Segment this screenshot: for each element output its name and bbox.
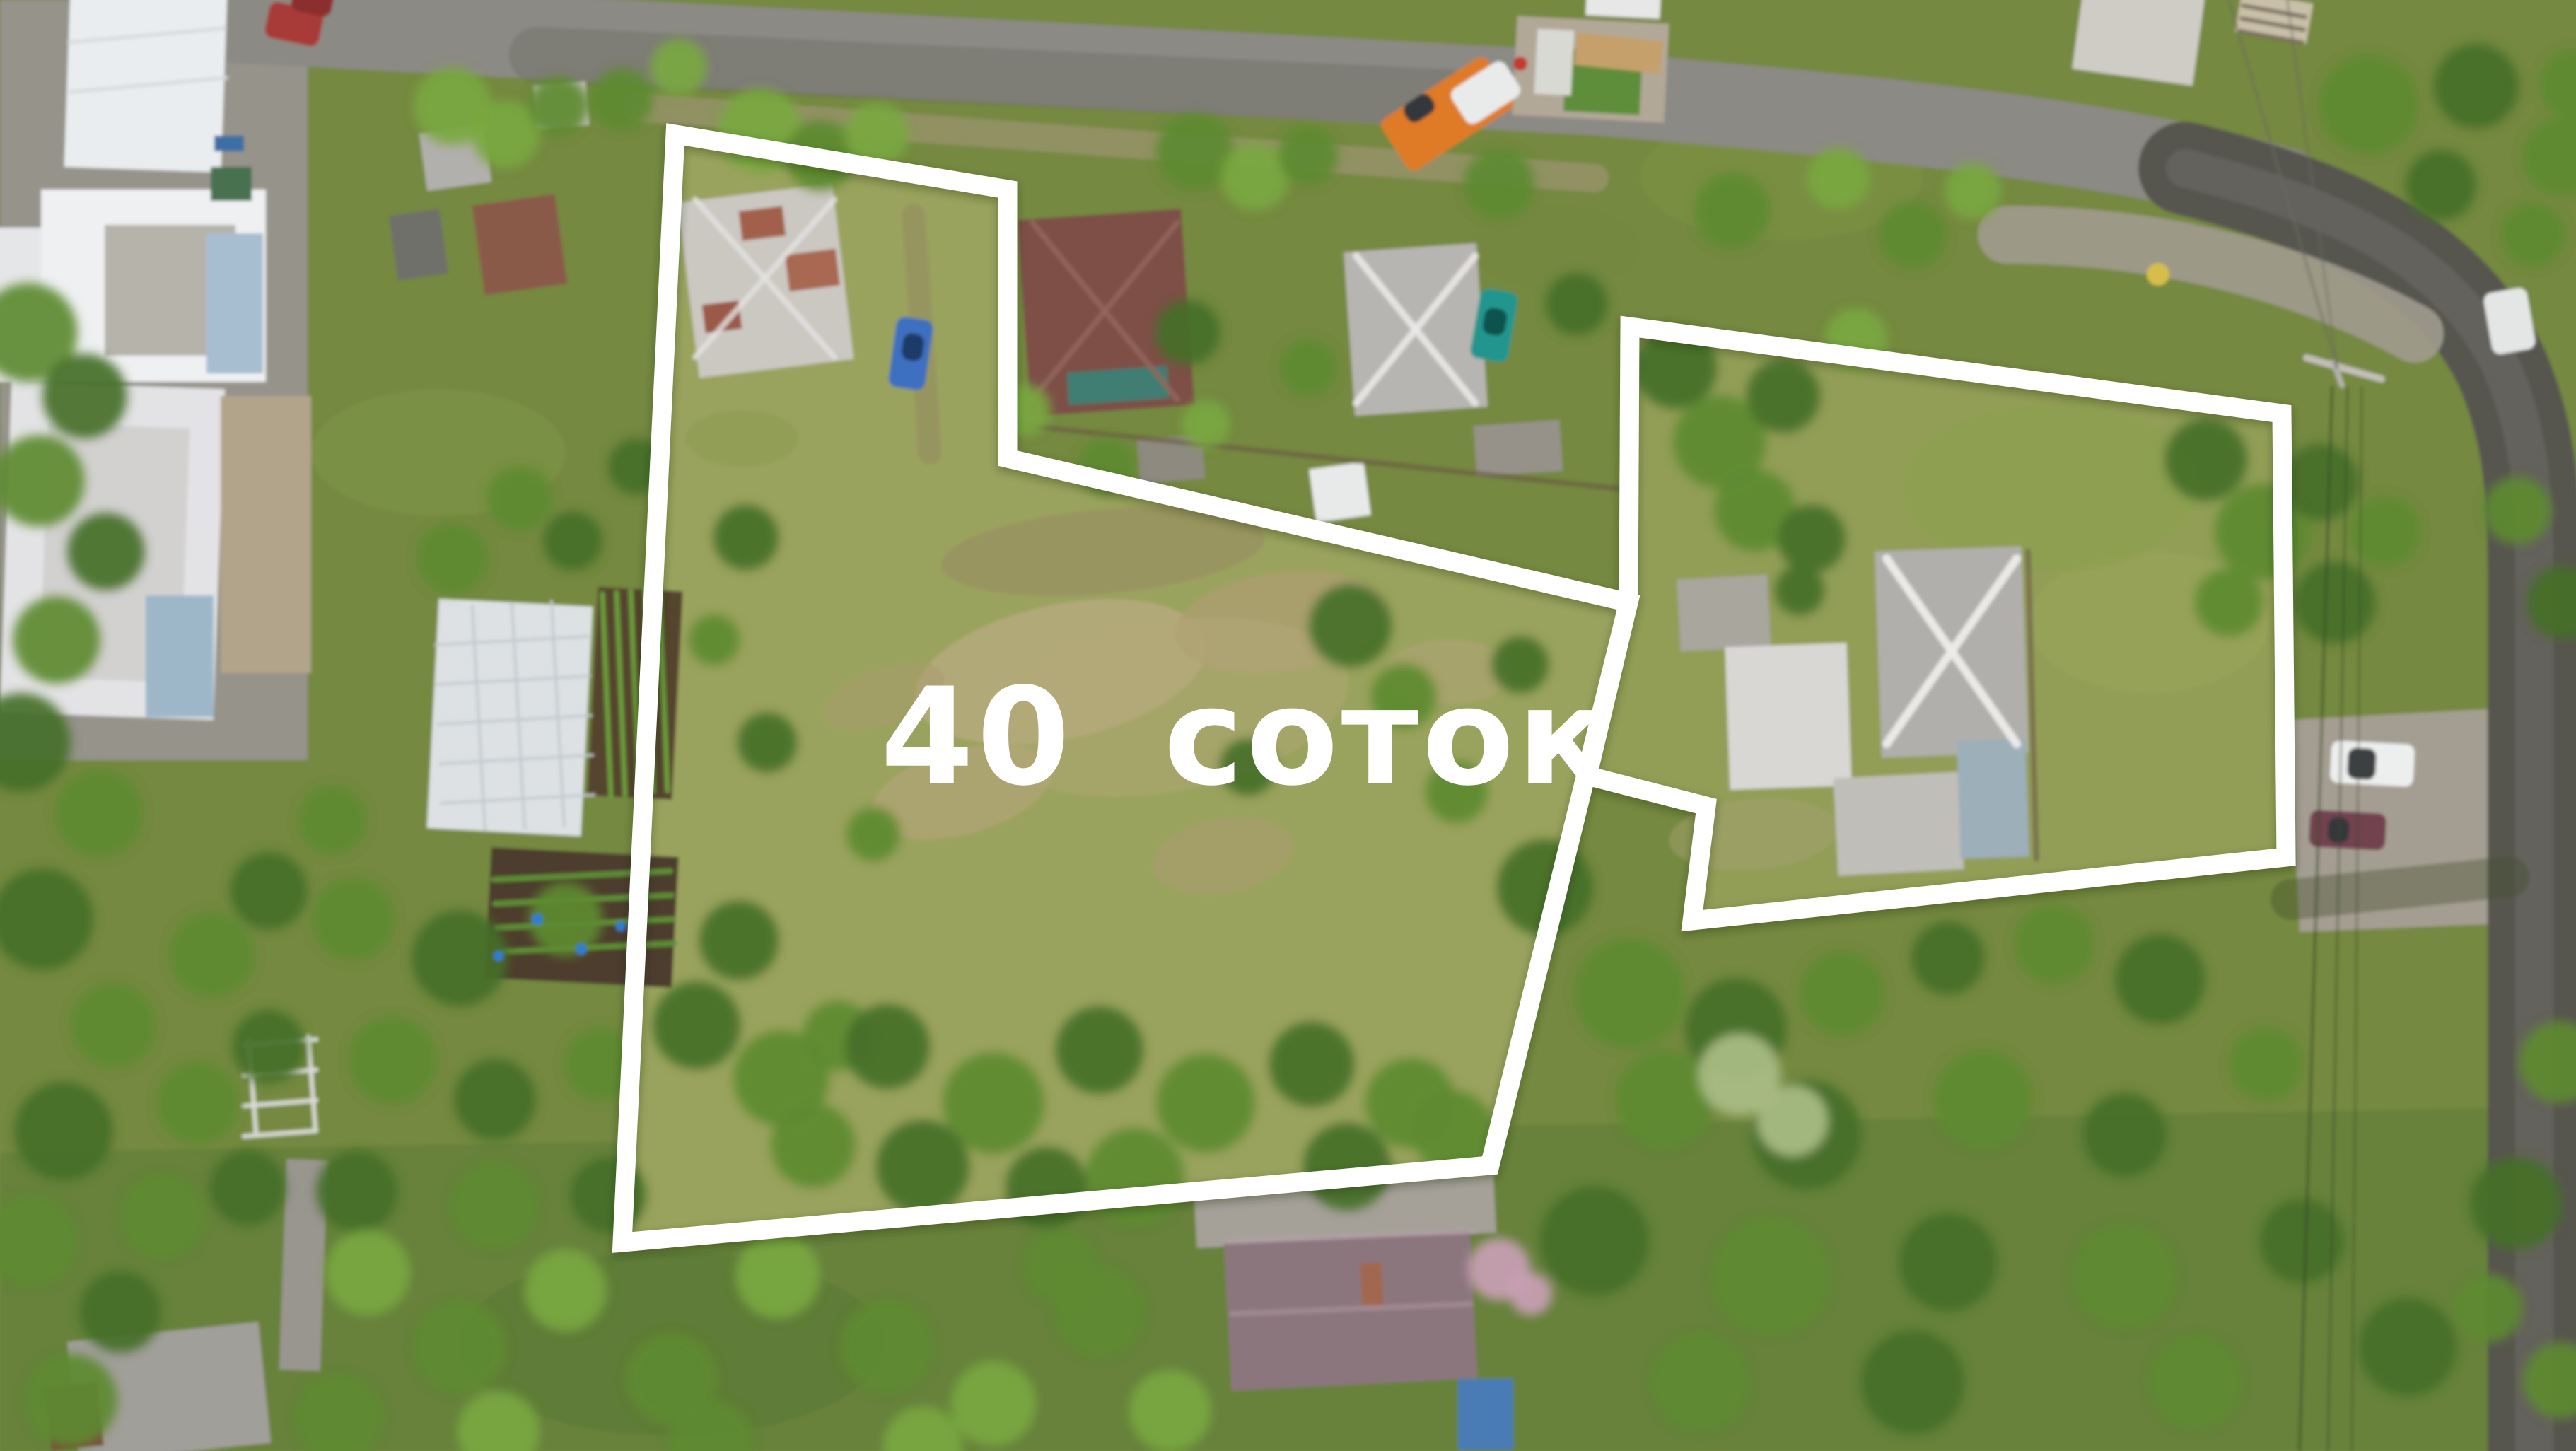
aerial-photo-canvas: 40 соток [0,0,2576,1451]
tree [1155,300,1220,365]
tree [1807,147,1870,209]
tree [1056,1006,1143,1094]
tree [1778,505,1846,573]
tree [738,713,797,772]
tree [2015,904,2094,984]
tree [55,769,143,857]
tree [1024,1229,1097,1303]
tree [2434,44,2519,129]
tree [845,1004,930,1089]
tree [735,1234,820,1319]
concrete-pad [1677,575,1771,652]
blue-tarp [1458,1379,1513,1450]
tree [230,852,308,930]
green-roof [211,167,252,201]
tree [298,786,366,854]
tree [1757,1085,1828,1156]
tree [876,1120,969,1213]
tree [349,1017,436,1105]
white-shed [1309,462,1371,523]
tree [841,1300,934,1394]
tree [771,1103,856,1188]
tree [487,466,552,531]
tree [451,1162,539,1249]
tree [13,596,100,684]
tree [2082,1092,2167,1177]
chimney [1360,1262,1383,1308]
house-roof [472,194,568,295]
tree [2358,1298,2457,1397]
small-object [532,914,543,925]
tree [325,1230,410,1315]
dirt-patch [686,410,799,467]
tree [1280,339,1336,396]
tree [525,1249,607,1331]
car-window [2347,747,2377,780]
tree [2195,569,2263,636]
tree [2230,1027,2303,1101]
tree [951,1361,1036,1446]
tree [417,523,488,594]
tree [2073,1224,2177,1329]
solar-panel [214,136,244,151]
small-object [2147,263,2169,286]
tree [543,511,602,571]
tree [699,901,779,980]
small-object [494,951,503,961]
tree [71,983,156,1068]
tree [529,76,588,136]
tree [2406,150,2476,221]
small-object [616,921,626,931]
tree [653,981,740,1069]
tree [2501,203,2565,267]
detail-line [2291,877,2509,899]
tree [1651,1333,1750,1432]
tree [2455,1274,2523,1342]
tree [1575,938,1685,1049]
tree [1129,1370,1211,1451]
white-building [1725,643,1852,790]
tree [713,505,779,570]
tree [1879,201,1947,269]
blue-roof-section [206,233,263,373]
dirt-patch [1902,403,2199,573]
tree [1899,1213,1998,1312]
tree [2165,419,2247,501]
area-label: 40 соток [880,659,1611,815]
tree [1934,1050,2033,1149]
tree [651,39,707,95]
tree [1911,921,1985,995]
tree [1945,163,2001,219]
tree [2469,1157,2563,1250]
tree [2149,1336,2242,1429]
small-object [576,943,587,955]
tree [79,1271,161,1353]
tree [1182,400,1230,448]
tree [1800,951,1884,1036]
tree [846,808,900,861]
bluegray-roof [1957,738,2029,858]
tree [1860,1330,1965,1435]
roof-patch-red [785,249,840,291]
tree [689,614,740,665]
tree [232,1010,305,1083]
corrugated-shed [1834,771,1964,875]
tree [313,878,395,960]
tree [157,1062,239,1144]
aerial-photograph: 40 соток [0,0,2576,1451]
pallets [1534,29,1575,96]
tree [1510,1273,1552,1315]
tree [2319,55,2418,154]
tree [1747,359,1820,433]
blue-roof-section [146,595,214,717]
tree [1156,1054,1255,1153]
tree [1310,585,1392,667]
tree [1539,1186,1650,1296]
tree [1278,126,1338,185]
tree [2294,561,2376,643]
tree [209,1150,286,1226]
tree [1464,148,1534,219]
tree [1694,173,1771,249]
tree [2115,934,2205,1025]
tree [1712,1217,1831,1336]
tree [1085,1128,1184,1227]
tree [454,1059,536,1141]
tree [1546,273,1608,335]
tree [1269,1022,1354,1107]
tree [2483,477,2551,544]
dirt-court [221,396,311,673]
tree [412,910,508,1006]
tree [24,1353,117,1447]
small-object [1513,57,1527,71]
tree [42,354,127,438]
tree [591,68,653,130]
roof-patch-red [739,206,786,240]
tree [413,1300,506,1394]
tree [1775,566,1824,615]
tree [14,1082,113,1181]
tree [120,1174,205,1259]
tree [170,912,255,997]
house-roof [389,209,448,280]
shed [1474,420,1563,477]
tree [316,1150,398,1233]
tree [67,513,145,590]
